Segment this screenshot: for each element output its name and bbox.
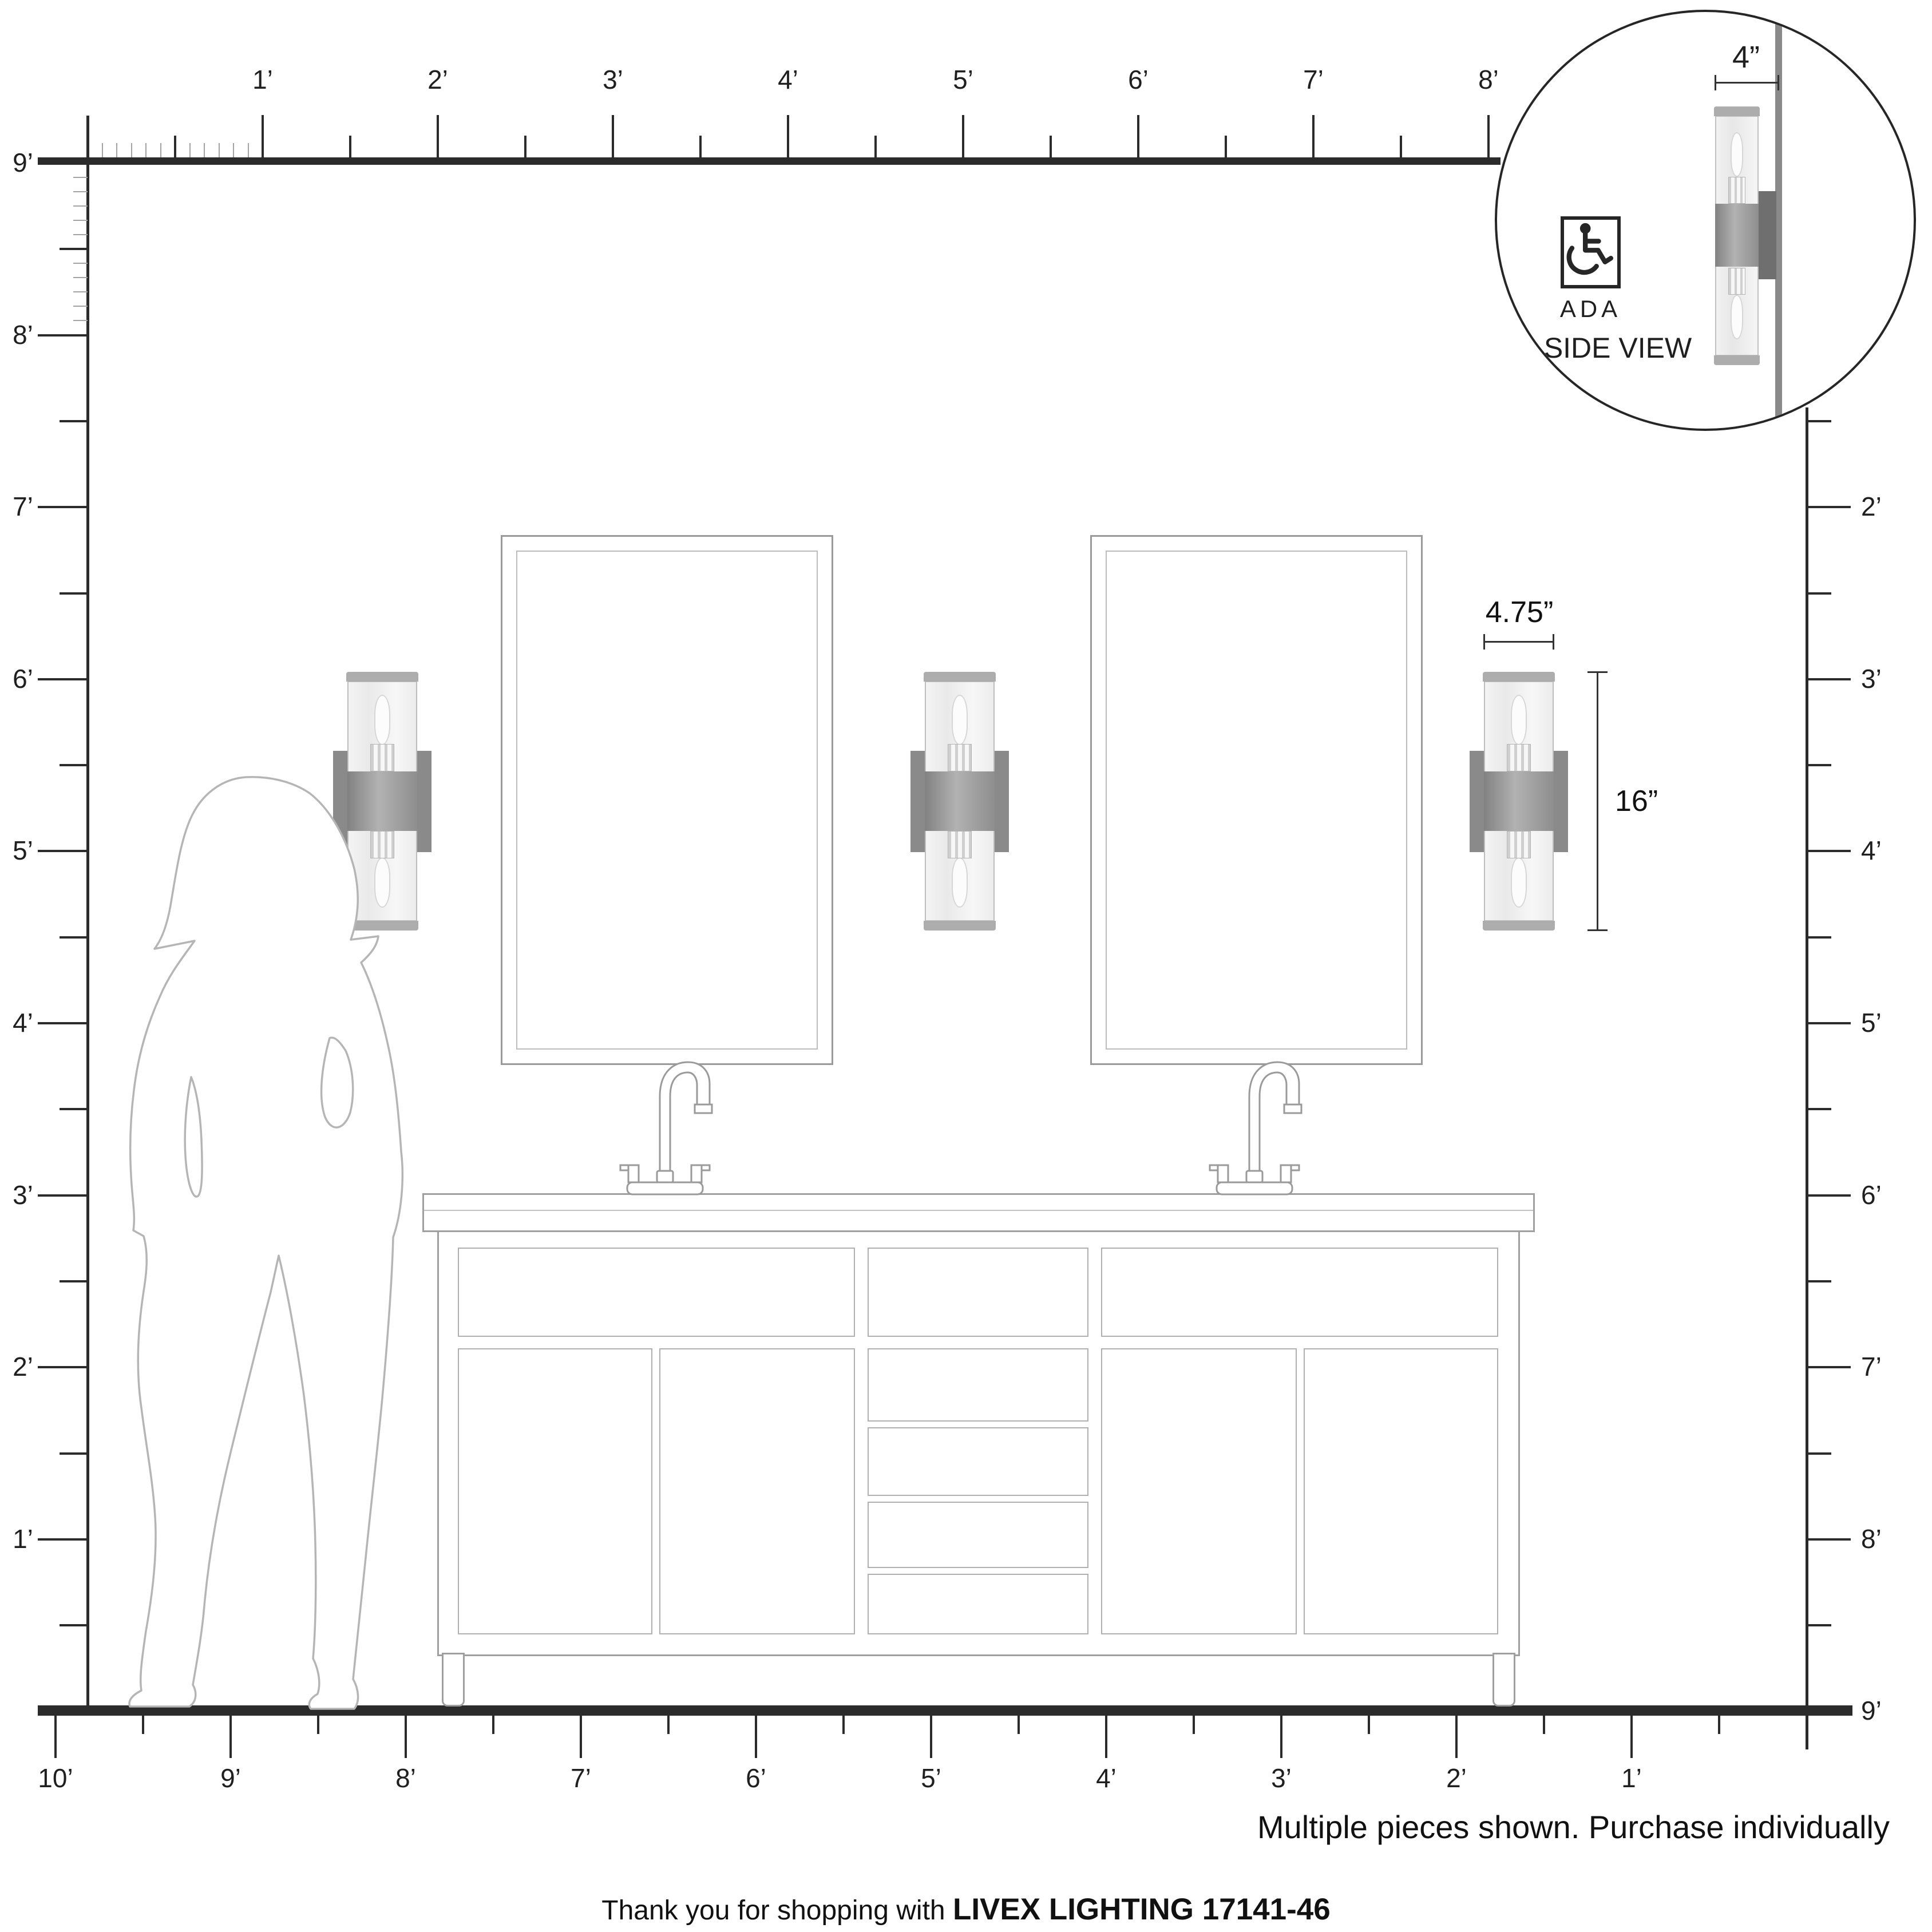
faucet-handle-right-stem <box>691 1165 702 1182</box>
woman-outline <box>129 777 402 1709</box>
faucet-aerator <box>1284 1104 1301 1113</box>
side-sconce-socket-top <box>1728 177 1745 204</box>
thank-you-line: Thank you for shopping with LIVEX LIGHTI… <box>0 1892 1932 1927</box>
depth-dimension-label: 4” <box>1700 39 1792 75</box>
side-sconce <box>1715 106 1759 365</box>
faucet-escutcheon <box>627 1182 703 1194</box>
side-view-label: SIDE VIEW <box>1523 331 1712 365</box>
faucet-spout <box>660 1062 710 1171</box>
side-sconce-cap-top <box>1714 106 1760 116</box>
woman-silhouette <box>129 777 402 1709</box>
faucet-handle-right-stem <box>1281 1165 1291 1182</box>
side-sconce-bulb-top <box>1731 132 1743 177</box>
side-sconce-bracket <box>1756 191 1776 279</box>
faucet-left <box>620 1062 712 1194</box>
faucet-handle-left-stem <box>1218 1165 1228 1182</box>
product-dimension-diagram: 1’2’3’4’5’6’7’8’9’8’7’6’5’4’3’2’1’2’3’4’… <box>0 0 1932 1932</box>
purchase-note: Multiple pieces shown. Purchase individu… <box>1145 1808 1890 1846</box>
faucet-collar <box>1246 1171 1262 1182</box>
faucets <box>620 1062 1301 1194</box>
brand-and-sku: LIVEX LIGHTING 17141-46 <box>953 1893 1331 1926</box>
side-sconce-band <box>1715 204 1759 267</box>
faucet-collar <box>657 1171 673 1182</box>
side-view-inset-circle: 4” ADA SIDE VIEW <box>1495 10 1916 431</box>
side-sconce-bulb-bottom <box>1731 295 1743 339</box>
thank-you-prefix: Thank you for shopping with <box>601 1895 945 1926</box>
side-sconce-cap-bottom <box>1714 355 1760 365</box>
side-sconce-socket-bottom <box>1728 268 1745 295</box>
faucet-escutcheon <box>1217 1182 1292 1194</box>
ada-icon-box <box>1561 216 1621 288</box>
faucet-right <box>1210 1062 1301 1194</box>
wheelchair-icon <box>1564 220 1617 285</box>
faucet-aerator <box>695 1104 712 1113</box>
depth-dimension-tick-right <box>1777 75 1779 90</box>
ada-label: ADA <box>1541 295 1641 323</box>
depth-dimension-line <box>1715 82 1779 84</box>
faucet-handle-left-stem <box>628 1165 639 1182</box>
faucet-spout <box>1249 1062 1299 1171</box>
depth-dimension-tick-left <box>1715 75 1716 90</box>
